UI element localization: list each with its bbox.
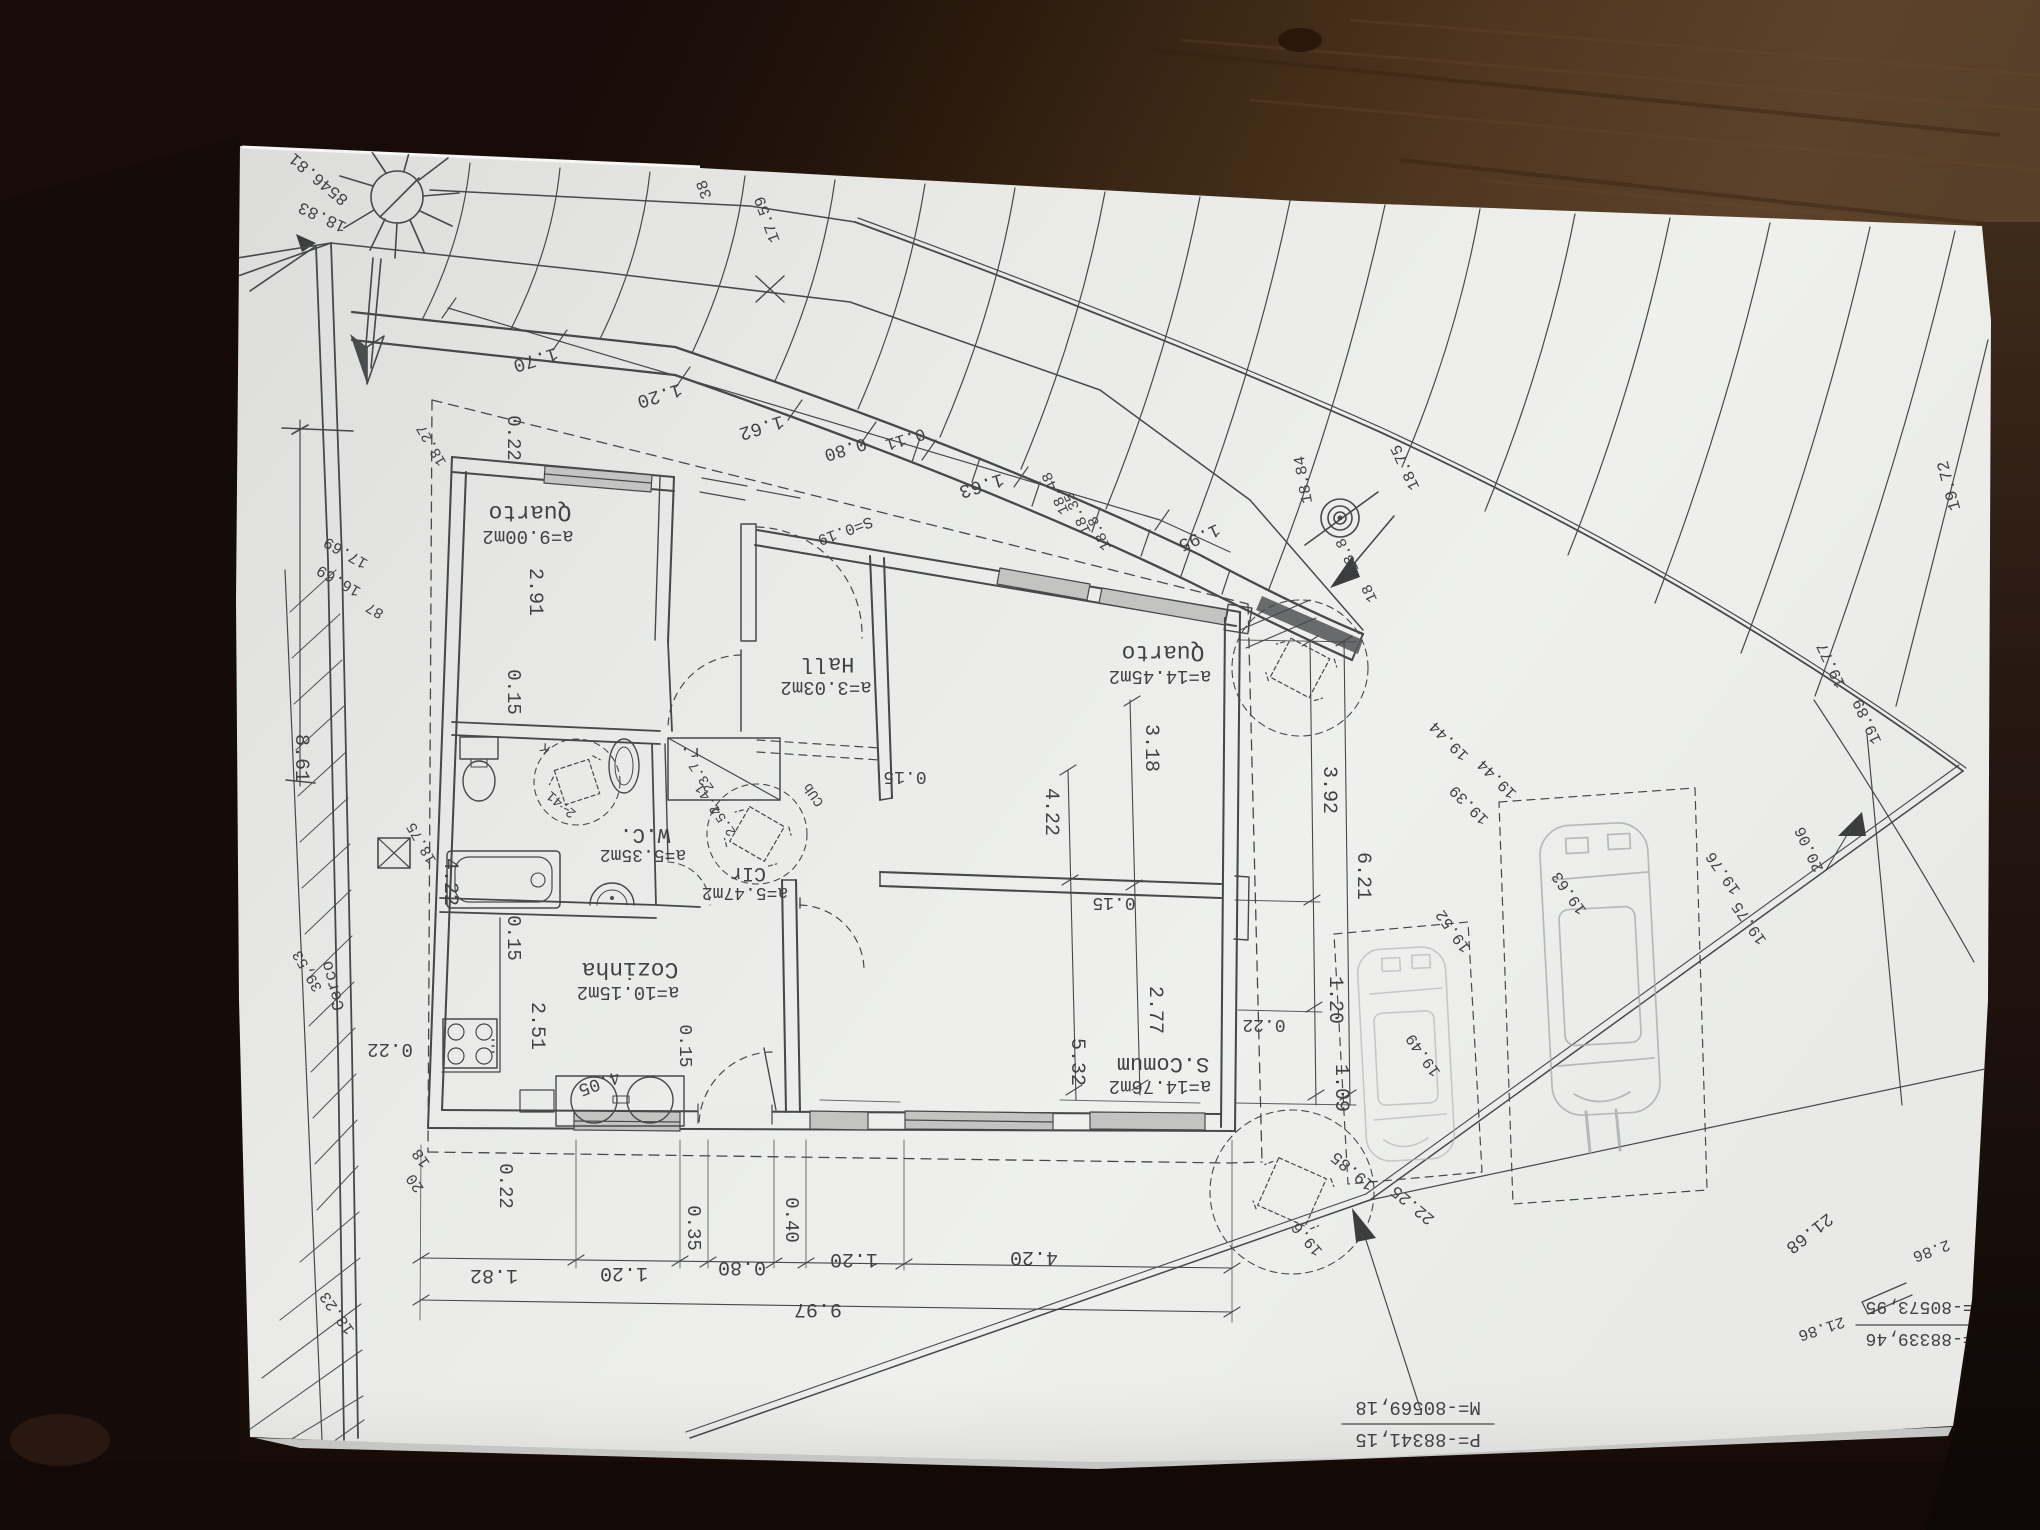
svg-text:8.61: 8.61 <box>289 734 312 782</box>
svg-text:r.: r. <box>680 742 700 761</box>
svg-text:4.22: 4.22 <box>438 858 461 906</box>
svg-text:0.15: 0.15 <box>502 915 524 961</box>
svg-text:5.32: 5.32 <box>1065 1038 1088 1086</box>
svg-text:S.Comum: S.Comum <box>1117 1051 1209 1076</box>
svg-text:a=10.15m2: a=10.15m2 <box>577 981 680 1003</box>
svg-text:0.15: 0.15 <box>883 766 926 786</box>
svg-text:a=14.76m2: a=14.76m2 <box>1109 1075 1212 1097</box>
svg-text:4.20: 4.20 <box>1010 1245 1058 1268</box>
svg-text:0.22: 0.22 <box>367 1038 413 1060</box>
svg-text:0.22: 0.22 <box>502 415 524 461</box>
svg-text:1.09: 1.09 <box>1329 1064 1352 1112</box>
svg-text:M=-80573,95: M=-80573,95 <box>1866 1296 1985 1316</box>
svg-text:0.80: 0.80 <box>718 1255 766 1278</box>
svg-text:3.18: 3.18 <box>1139 724 1162 772</box>
svg-text:1.20: 1.20 <box>600 1261 648 1284</box>
svg-text:2.51: 2.51 <box>525 1002 548 1050</box>
svg-text:6.21: 6.21 <box>1351 852 1374 900</box>
svg-text:2.77: 2.77 <box>1143 986 1166 1034</box>
svg-text:a=9.00m2: a=9.00m2 <box>482 525 573 547</box>
svg-text:9.97: 9.97 <box>794 1297 842 1320</box>
svg-text:a=5.35m2: a=5.35m2 <box>600 844 686 864</box>
svg-text:0.15: 0.15 <box>674 1024 694 1067</box>
svg-text:Quarto: Quarto <box>489 499 572 525</box>
svg-text:0.35: 0.35 <box>682 1205 704 1251</box>
svg-text:M=-80569,18: M=-80569,18 <box>1355 1396 1480 1418</box>
svg-text:P=-88341,15: P=-88341,15 <box>1355 1428 1480 1450</box>
svg-text:a=14.45m2: a=14.45m2 <box>1109 665 1212 687</box>
svg-text:CIr: CIr <box>730 861 766 884</box>
svg-text:0.15: 0.15 <box>502 669 524 715</box>
svg-text:Quarto: Quarto <box>1122 639 1205 665</box>
svg-text:2.91: 2.91 <box>523 568 546 616</box>
svg-text:Hall: Hall <box>802 651 855 676</box>
svg-text:0.22: 0.22 <box>494 1163 516 1209</box>
svg-text:1.20: 1.20 <box>1323 976 1346 1024</box>
svg-text:4.22: 4.22 <box>1039 788 1062 836</box>
svg-text:W.C.: W.C. <box>620 822 670 845</box>
svg-text:a=5.47m2: a=5.47m2 <box>702 882 788 902</box>
svg-text:1.82: 1.82 <box>470 1263 518 1286</box>
svg-text:3.92: 3.92 <box>1317 766 1340 814</box>
svg-text:a=3.03m2: a=3.03m2 <box>780 676 871 698</box>
svg-text:Cozinha: Cozinha <box>581 956 678 982</box>
svg-text:1.20: 1.20 <box>830 1247 878 1270</box>
svg-text:0.40: 0.40 <box>780 1197 802 1243</box>
svg-text:0.22: 0.22 <box>1242 1014 1285 1034</box>
svg-text:0.15: 0.15 <box>1092 892 1135 912</box>
